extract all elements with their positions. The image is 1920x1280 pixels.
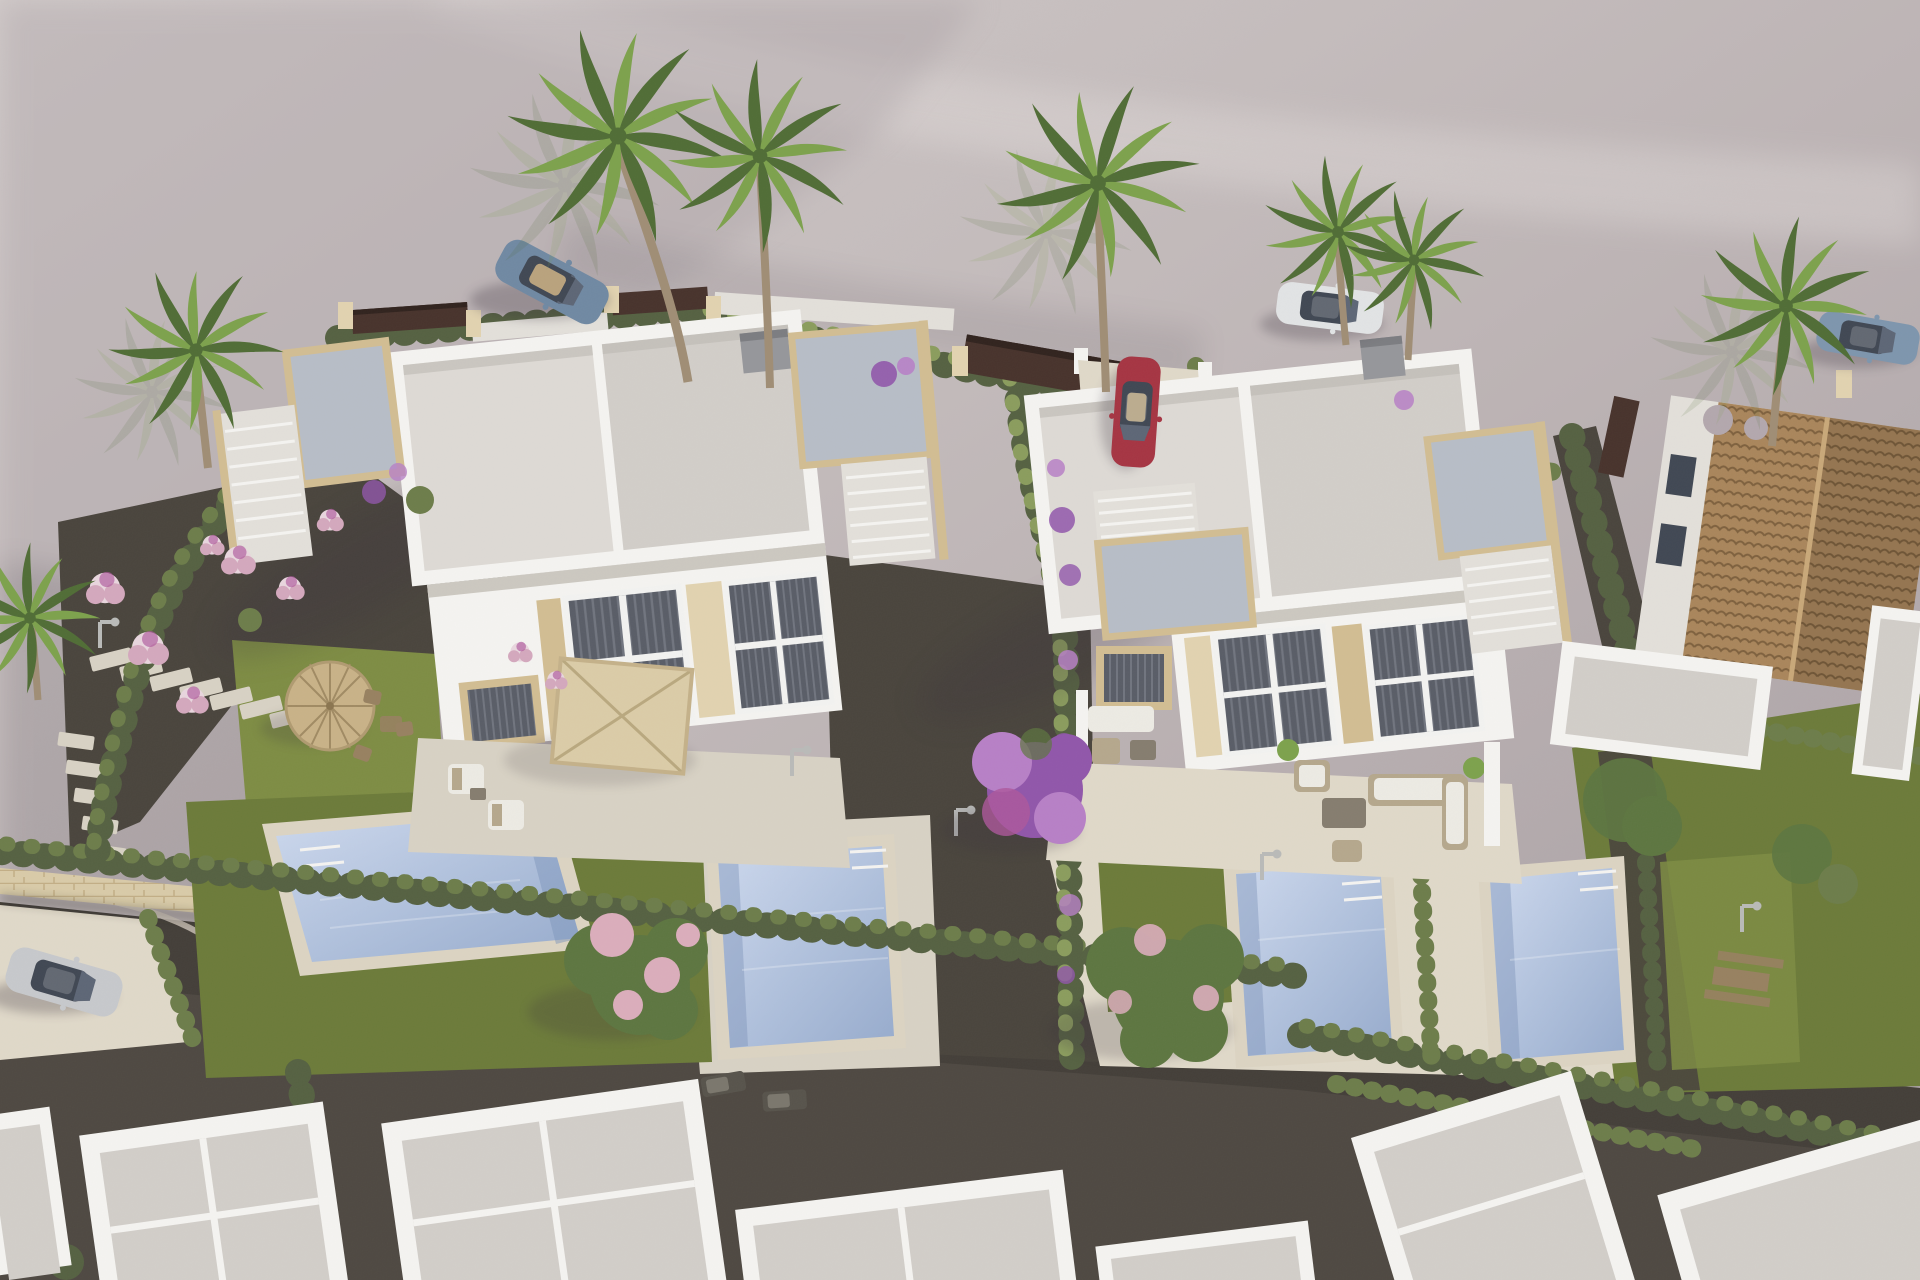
aerial-render [0, 0, 1920, 1280]
render-canvas [0, 0, 1920, 1280]
film-grain [0, 0, 1920, 1280]
